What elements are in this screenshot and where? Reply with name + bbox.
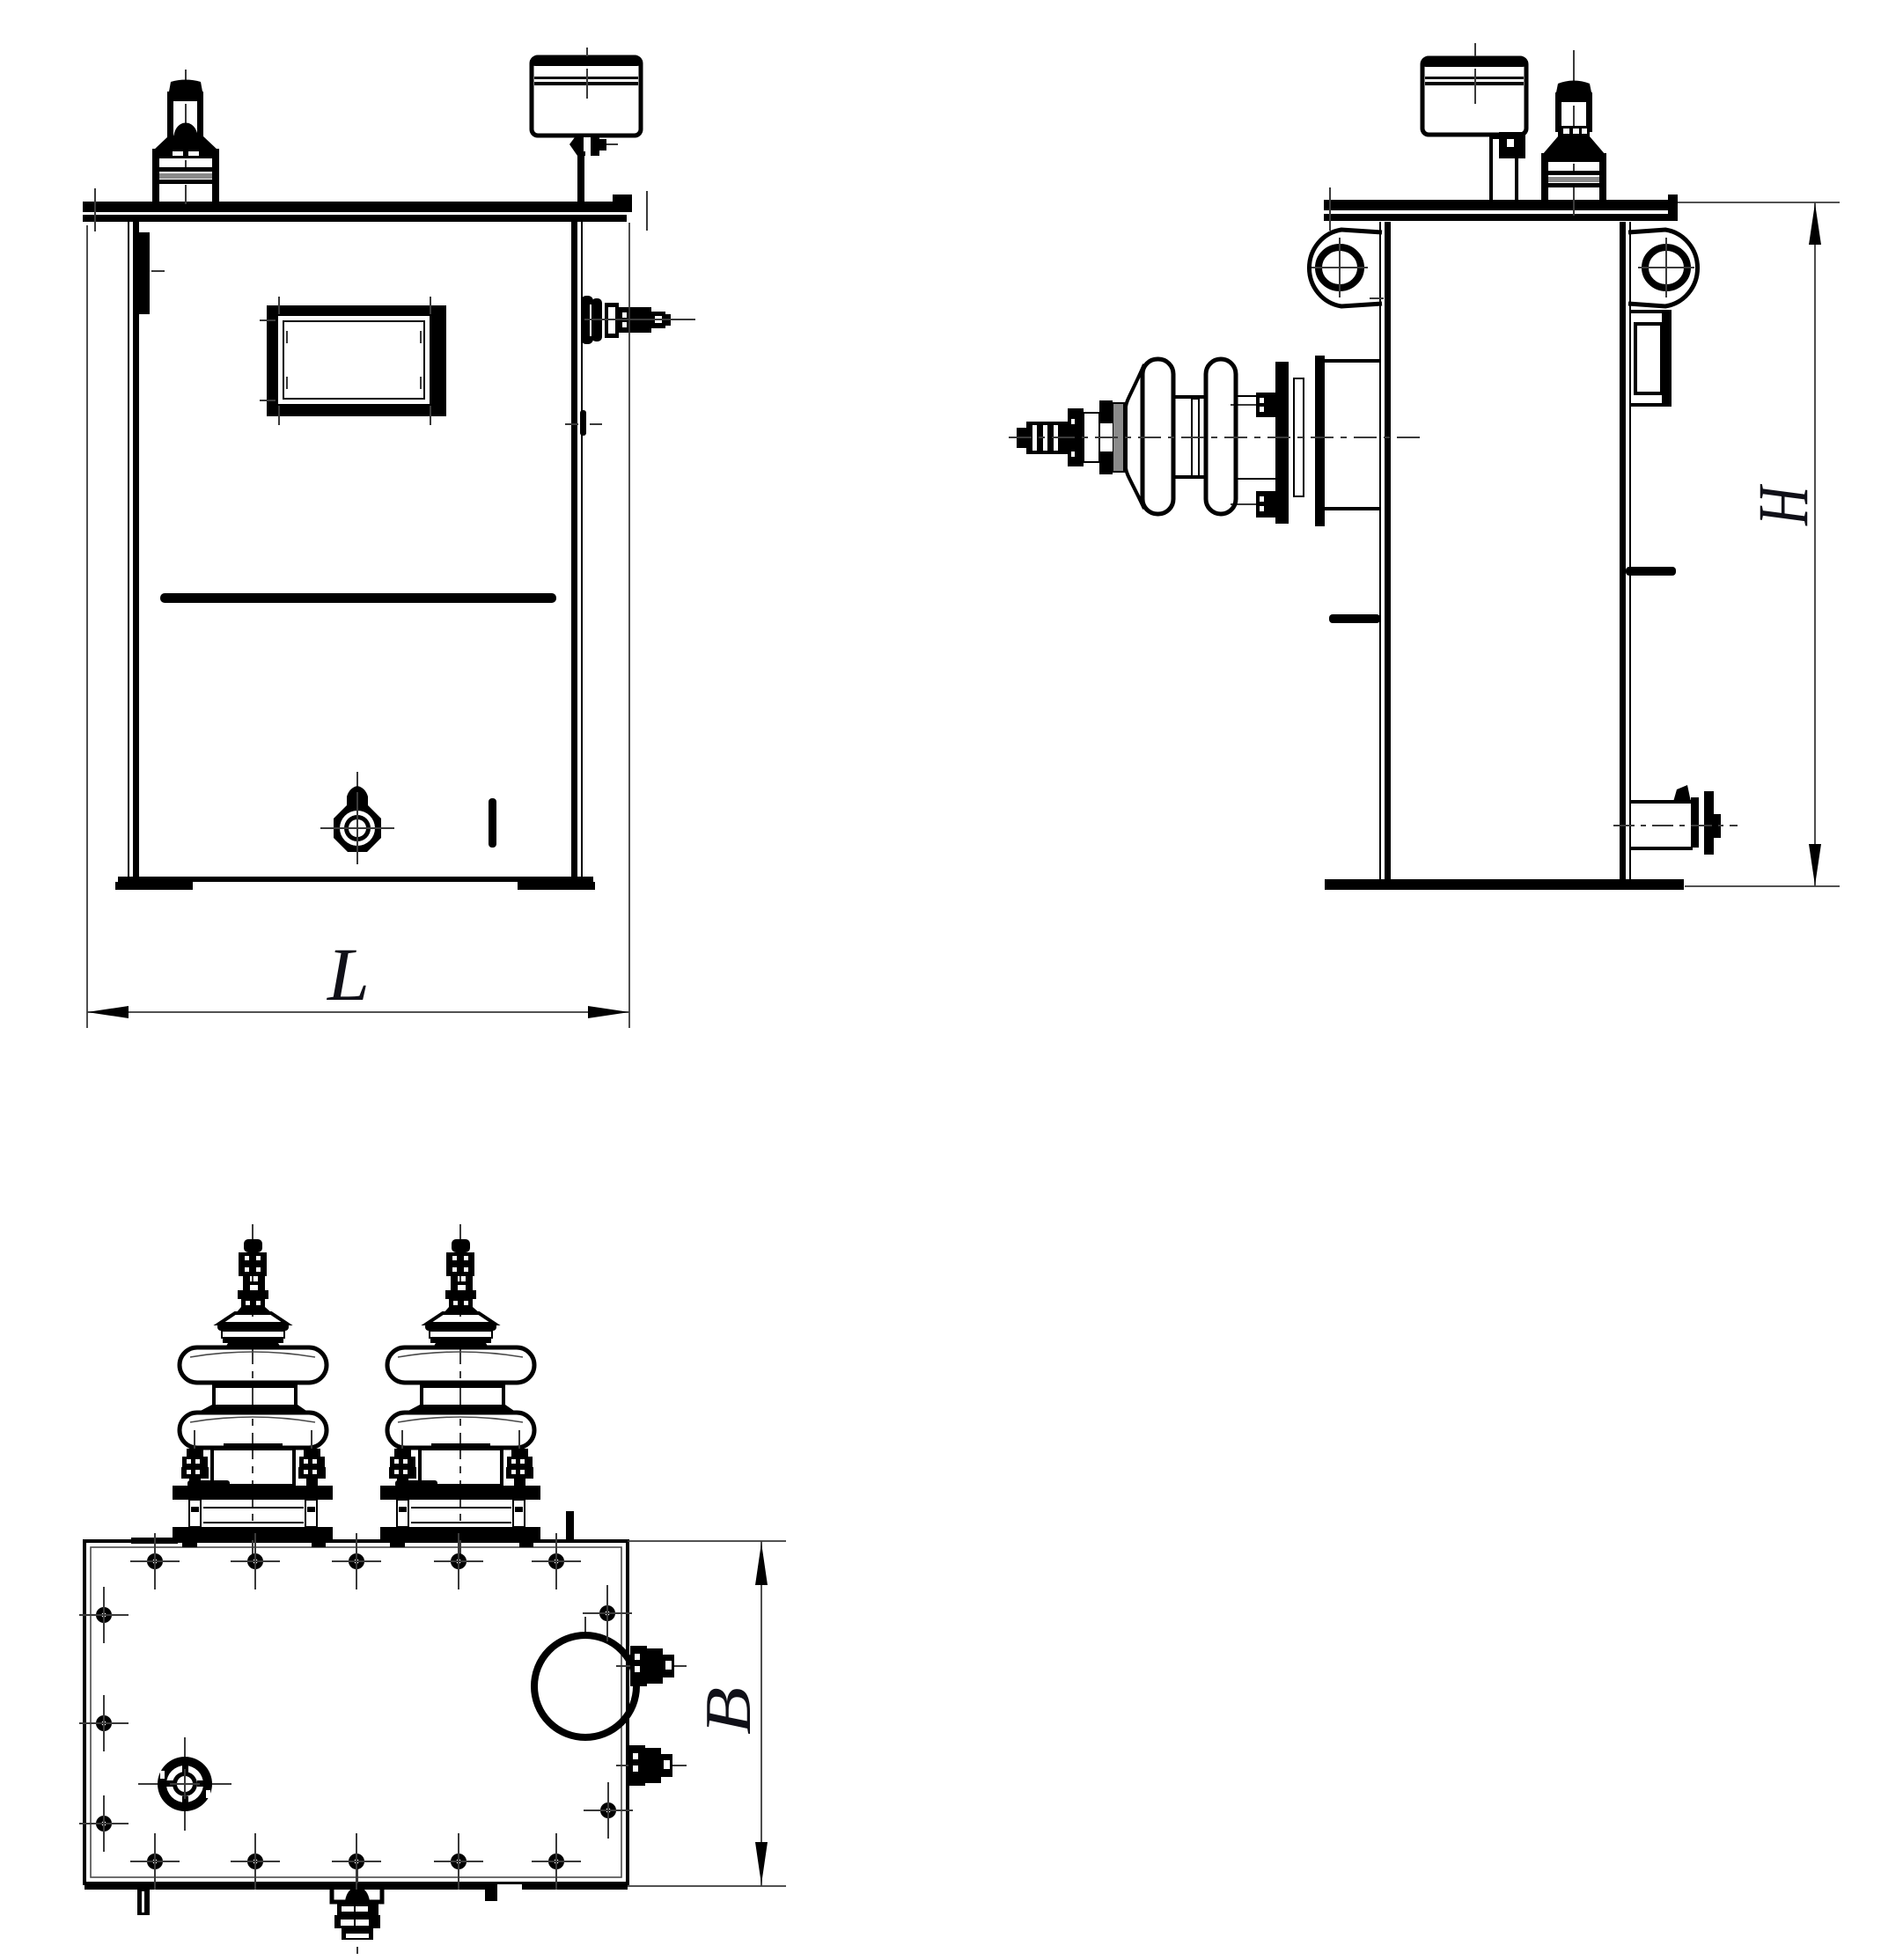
svg-text:L: L [326,932,370,1017]
svg-text:H: H [1742,483,1823,525]
svg-text:B: B [692,1687,764,1735]
